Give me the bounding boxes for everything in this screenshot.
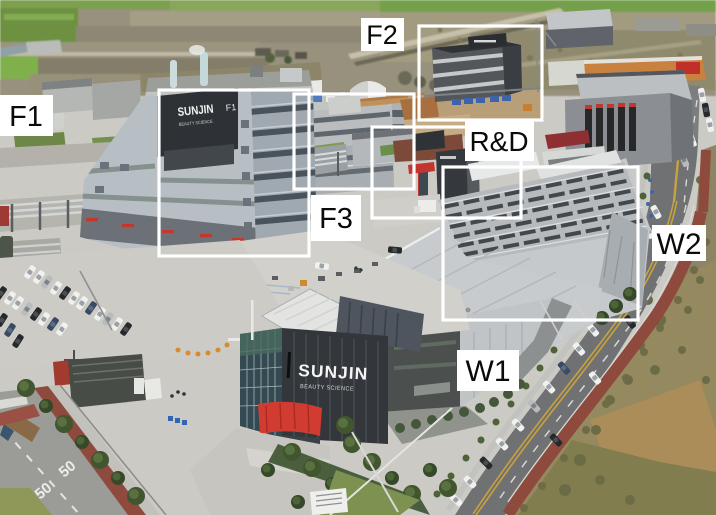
- svg-text:SUNJIN: SUNJIN: [298, 361, 369, 384]
- svg-text:F3: F3: [319, 203, 353, 235]
- svg-text:W2: W2: [657, 228, 702, 261]
- svg-text:F1: F1: [9, 101, 43, 133]
- svg-text:F1: F1: [225, 102, 236, 113]
- svg-text:F2: F2: [366, 20, 398, 50]
- svg-text:W1: W1: [466, 355, 511, 388]
- svg-text:R&D: R&D: [469, 126, 528, 157]
